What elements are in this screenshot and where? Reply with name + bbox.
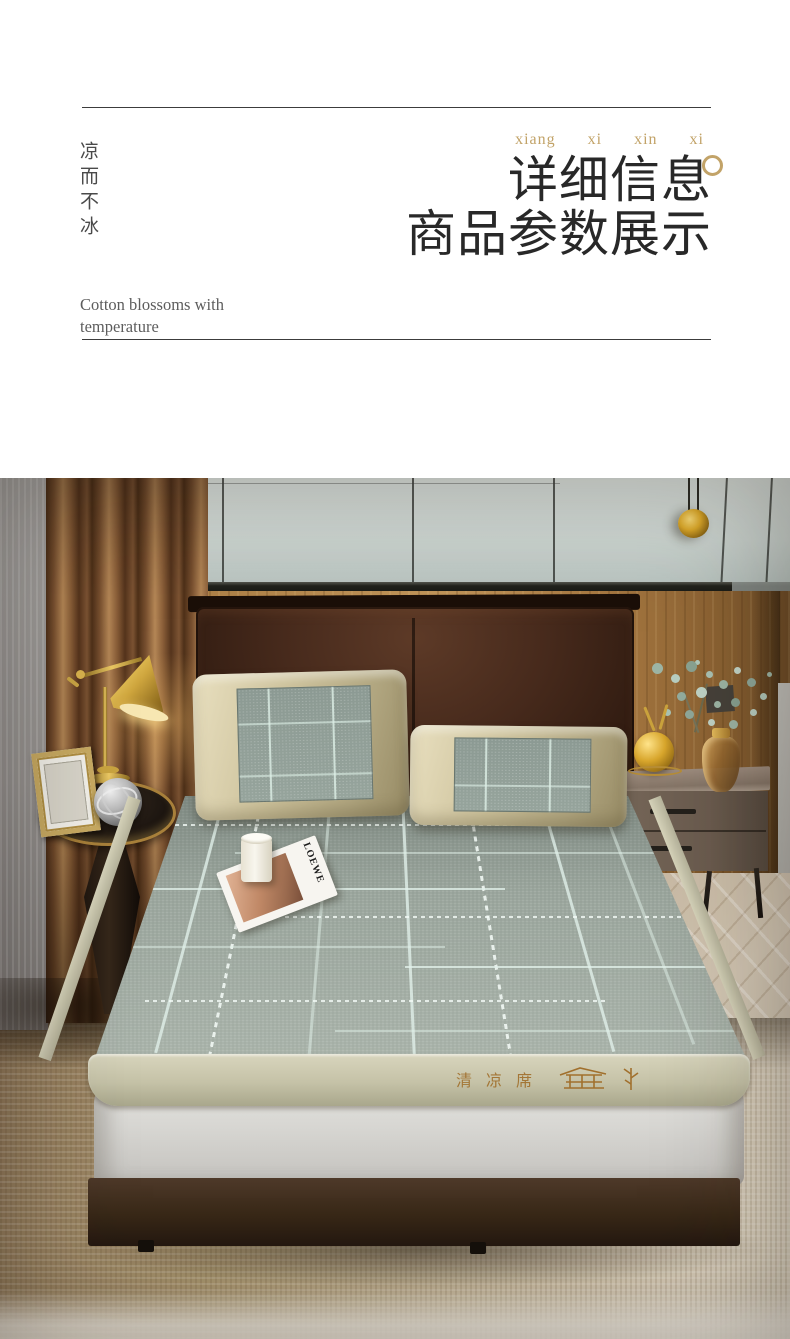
- vertical-slogan: 凉而不冰: [74, 141, 101, 261]
- bottom-divider-line: [82, 339, 711, 340]
- page-title: 详细信息: [406, 153, 712, 207]
- picture-frame: [31, 747, 101, 838]
- title-block: xiang xi xin xi 详细信息 商品参数展示: [406, 131, 712, 261]
- bed-foot: [138, 1240, 154, 1252]
- panel-seam: [765, 478, 773, 590]
- caption-line-1: Cotton blossoms with: [80, 294, 224, 316]
- bed-base: [88, 1178, 740, 1246]
- mat-plaid-line: [405, 966, 745, 968]
- english-caption: Cotton blossoms with temperature: [80, 294, 224, 339]
- lamp-joint: [76, 670, 85, 679]
- pinyin-subtitle: xiang xi xin xi: [406, 131, 704, 149]
- gold-ring-icon: [702, 155, 723, 176]
- bed-foot: [470, 1242, 486, 1254]
- mat-front-border: 清凉席: [88, 1054, 750, 1106]
- mat-plaid-line: [335, 1030, 745, 1032]
- mat-plaid-line: [285, 916, 735, 918]
- bedroom-product-photo: 清凉席: [0, 478, 790, 1339]
- top-divider-line: [82, 107, 711, 108]
- caption-line-2: temperature: [80, 316, 224, 338]
- panel-seam: [553, 478, 555, 590]
- amber-glass-vase: [702, 736, 740, 792]
- candle-glass: [241, 838, 272, 882]
- mat-plaid-line: [145, 1000, 605, 1002]
- mat-embroidery: 清凉席: [456, 1066, 640, 1092]
- ornament-base-ring: [628, 766, 682, 776]
- header-section: 凉而不冰 xiang xi xin xi 详细信息 商品参数展示 Cotton …: [0, 0, 790, 478]
- mat-plaid-line: [467, 796, 512, 1059]
- mat-pillow-right: [409, 725, 627, 827]
- rug-light-edge: [0, 1290, 790, 1339]
- embroidery-text: 清凉席: [456, 1067, 546, 1091]
- pillow-mat-panel: [454, 737, 592, 812]
- bamboo-embroidery-icon: [622, 1066, 640, 1092]
- candle-wax-top: [241, 833, 272, 844]
- vase-gold-rim: [712, 728, 730, 738]
- frame-photo: [43, 760, 88, 824]
- pillow-mat-panel: [237, 685, 374, 802]
- product-detail-page: 凉而不冰 xiang xi xin xi 详细信息 商品参数展示 Cotton …: [0, 0, 790, 1339]
- panel-seam: [412, 478, 414, 590]
- panel-seam: [720, 478, 728, 590]
- gold-pendant-light: [678, 509, 709, 538]
- pendant-cord: [697, 478, 699, 513]
- mat-plaid-line: [105, 946, 445, 948]
- page-subtitle: 商品参数展示: [406, 207, 712, 261]
- pavilion-embroidery-icon: [558, 1066, 610, 1092]
- eucalyptus-leaves: [652, 663, 663, 674]
- mat-plaid-line: [539, 796, 615, 1053]
- decor-box: [705, 685, 735, 713]
- mat-pillow-left: [192, 669, 410, 821]
- panel-seam: [222, 478, 224, 590]
- mat-plaid-line: [401, 796, 416, 1062]
